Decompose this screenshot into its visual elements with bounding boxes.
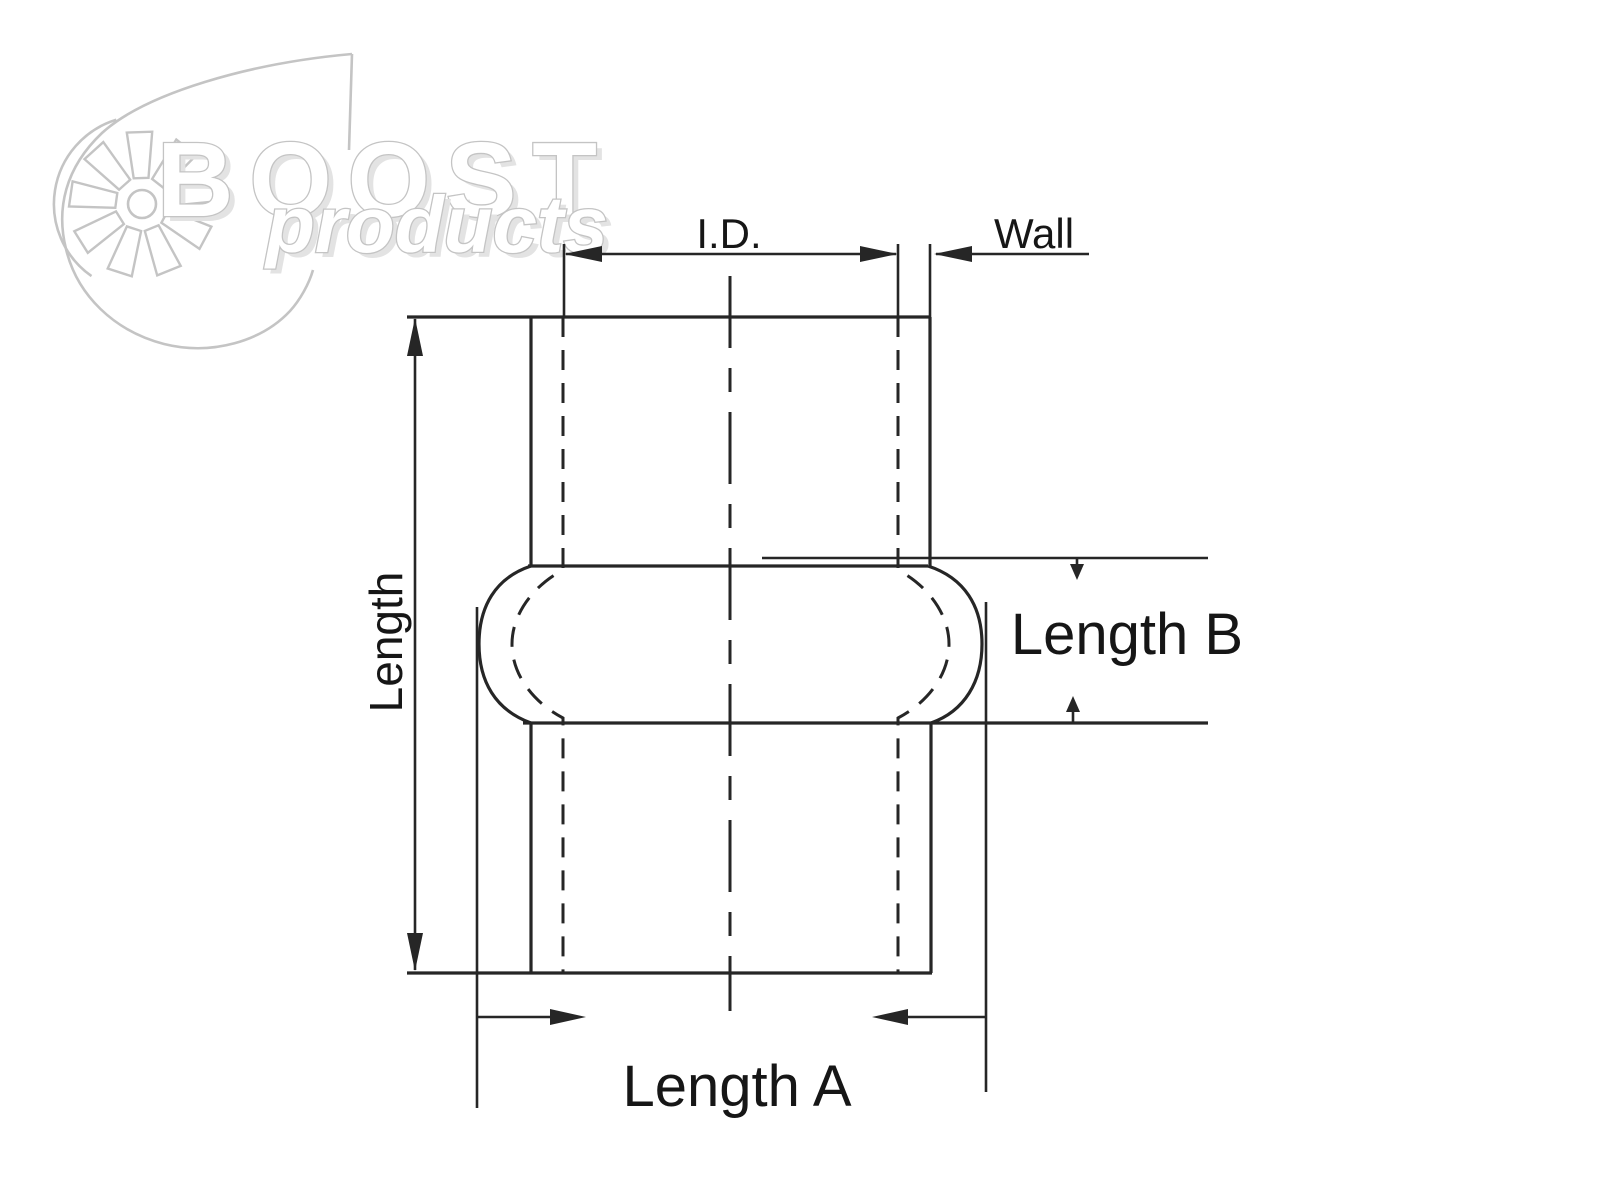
turbo-wheel-blade <box>85 142 131 190</box>
length-arrow-top <box>407 318 423 356</box>
id-label: I.D. <box>696 213 761 255</box>
length-a-arrow-right <box>872 1009 908 1025</box>
turbo-wheel-blade <box>127 132 152 179</box>
wall-arrow <box>934 246 972 262</box>
logo-sub-text: products <box>264 180 610 269</box>
length-b-label: Length B <box>1011 606 1243 664</box>
technical-drawing-canvas: BOOST BOOST products products <box>0 0 1600 1200</box>
length-a-label: Length A <box>623 1058 852 1116</box>
turbo-wheel-blade <box>69 181 117 207</box>
length-b-arrow-down <box>1070 564 1084 580</box>
length-a-arrow-left <box>550 1009 586 1025</box>
turbo-wheel-hub <box>128 190 156 218</box>
length-label: Length <box>363 572 409 713</box>
length-arrow-bottom <box>407 933 423 971</box>
wall-label: Wall <box>994 213 1074 255</box>
diagram-page: BOOST BOOST products products <box>0 0 1600 1200</box>
boost-logo: BOOST BOOST products products <box>54 54 616 348</box>
length-b-arrow-up <box>1066 696 1080 712</box>
id-arrow-right <box>860 246 898 262</box>
